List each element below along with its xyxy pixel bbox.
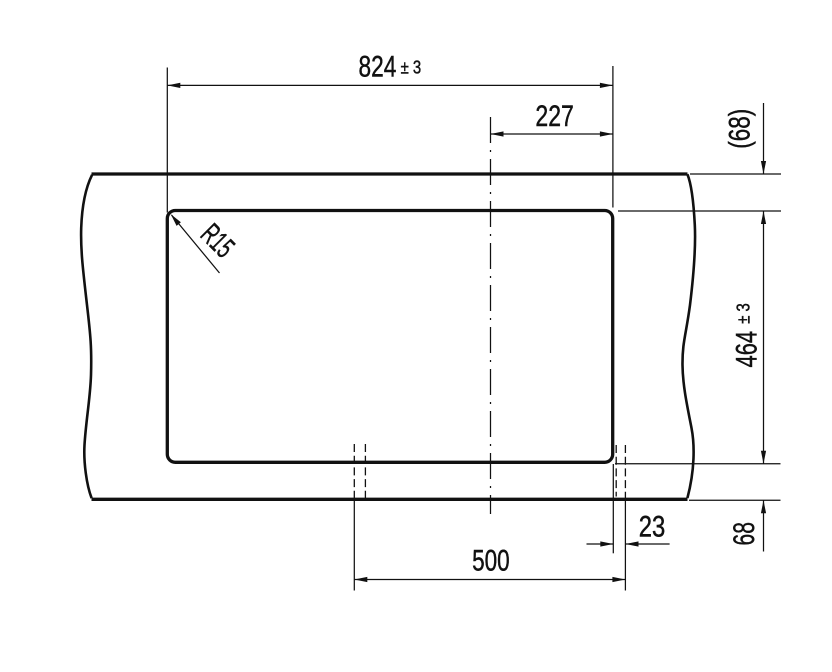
svg-text:68: 68 xyxy=(728,522,761,545)
svg-text:824: 824 xyxy=(359,51,397,84)
svg-text:227: 227 xyxy=(535,100,573,133)
svg-text:± 3: ± 3 xyxy=(734,303,754,324)
svg-text:23: 23 xyxy=(639,511,666,544)
svg-text:500: 500 xyxy=(472,544,510,577)
svg-text:± 3: ± 3 xyxy=(401,58,422,78)
svg-text:464: 464 xyxy=(731,331,764,368)
svg-text:(68): (68) xyxy=(724,109,757,149)
